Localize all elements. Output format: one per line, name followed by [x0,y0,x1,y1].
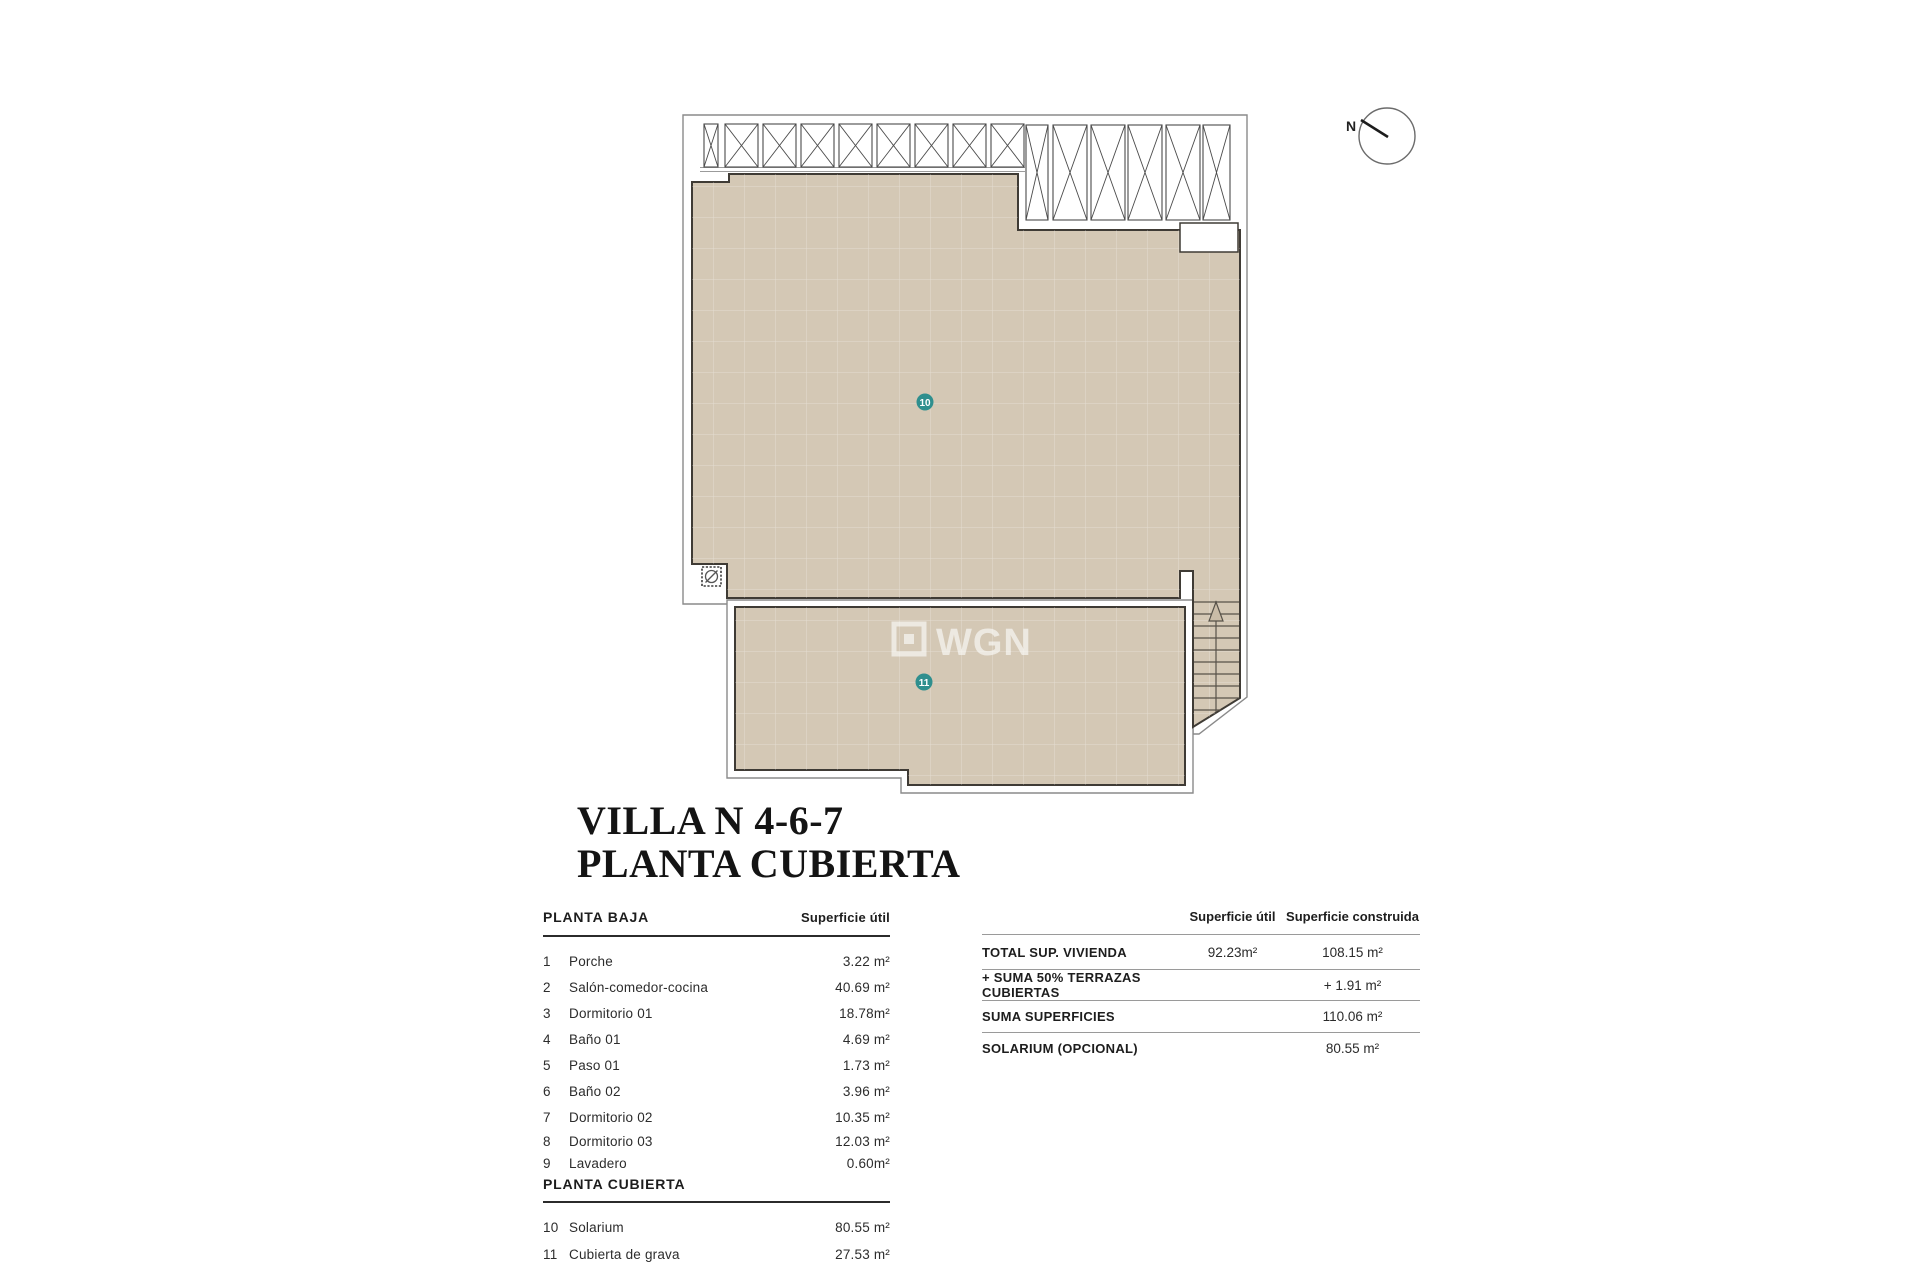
planta-baja-rows: 1 Porche 3.22 m² 2 Salón-comedor-cocina … [543,948,890,1174]
table-row: 8 Dormitorio 03 12.03 m² [543,1130,890,1152]
plan-title-line2: PLANTA CUBIERTA [577,842,961,885]
north-compass: N [1346,108,1415,164]
section-header-planta-baja: PLANTA BAJA [543,909,649,925]
floor-plan-page: WGN 10 11 N VILLA N 4-6-7 PLANTA CUBIERT… [0,0,1920,1280]
table-row: 4 Baño 01 4.69 m² [543,1026,890,1052]
plan-title-line1: VILLA N 4-6-7 [577,799,961,842]
room-marker-10: 10 [917,394,934,411]
summary-row-total: TOTAL SUP. VIVIENDA 92.23m² 108.15 m² [982,935,1420,970]
drain-icon [702,567,721,586]
summary-table-header: Superficie útil Superficie construida [982,909,1420,935]
column-header-superficie-util: Superficie útil [801,910,890,925]
table-row: 6 Baño 02 3.96 m² [543,1078,890,1104]
watermark-text: WGN [936,622,1032,664]
room-marker-11: 11 [916,674,933,691]
floor-plan-drawing: WGN 10 11 N [0,0,1920,1280]
areas-table-header: PLANTA BAJA Superficie útil [543,909,890,937]
summary-table: Superficie útil Superficie construida TO… [982,909,1420,1063]
section-header-planta-cubierta: PLANTA CUBIERTA [543,1176,685,1192]
summary-row-suma: SUMA SUPERFICIES 110.06 m² [982,1001,1420,1033]
planta-cubierta-rows: 10 Solarium 80.55 m² 11 Cubierta de grav… [543,1214,890,1268]
table-row: 5 Paso 01 1.73 m² [543,1052,890,1078]
plan-title: VILLA N 4-6-7 PLANTA CUBIERTA [577,799,961,885]
summary-row-solarium: SOLARIUM (OPCIONAL) 80.55 m² [982,1033,1420,1063]
table-row: 11 Cubierta de grava 27.53 m² [543,1241,890,1268]
room-marker-11-label: 11 [919,678,930,689]
table-row: 7 Dormitorio 02 10.35 m² [543,1104,890,1130]
section-header-planta-cubierta-wrap: PLANTA CUBIERTA [543,1176,890,1203]
compass-north-label: N [1346,118,1356,134]
table-row: 1 Porche 3.22 m² [543,948,890,974]
areas-table: PLANTA BAJA Superficie útil 1 Porche 3.2… [543,909,890,1268]
column-header-superficie-construida: Superficie construida [1285,909,1420,924]
column-header-superficie-util: Superficie útil [1180,909,1285,924]
table-row: 3 Dormitorio 01 18.78m² [543,1000,890,1026]
room-marker-10-label: 10 [919,398,931,409]
table-row: 2 Salón-comedor-cocina 40.69 m² [543,974,890,1000]
table-row: 9 Lavadero 0.60m² [543,1152,890,1174]
summary-row-terrazas: + SUMA 50% TERRAZAS CUBIERTAS + 1.91 m² [982,970,1420,1001]
roof-notch [1180,223,1238,252]
table-row: 10 Solarium 80.55 m² [543,1214,890,1241]
